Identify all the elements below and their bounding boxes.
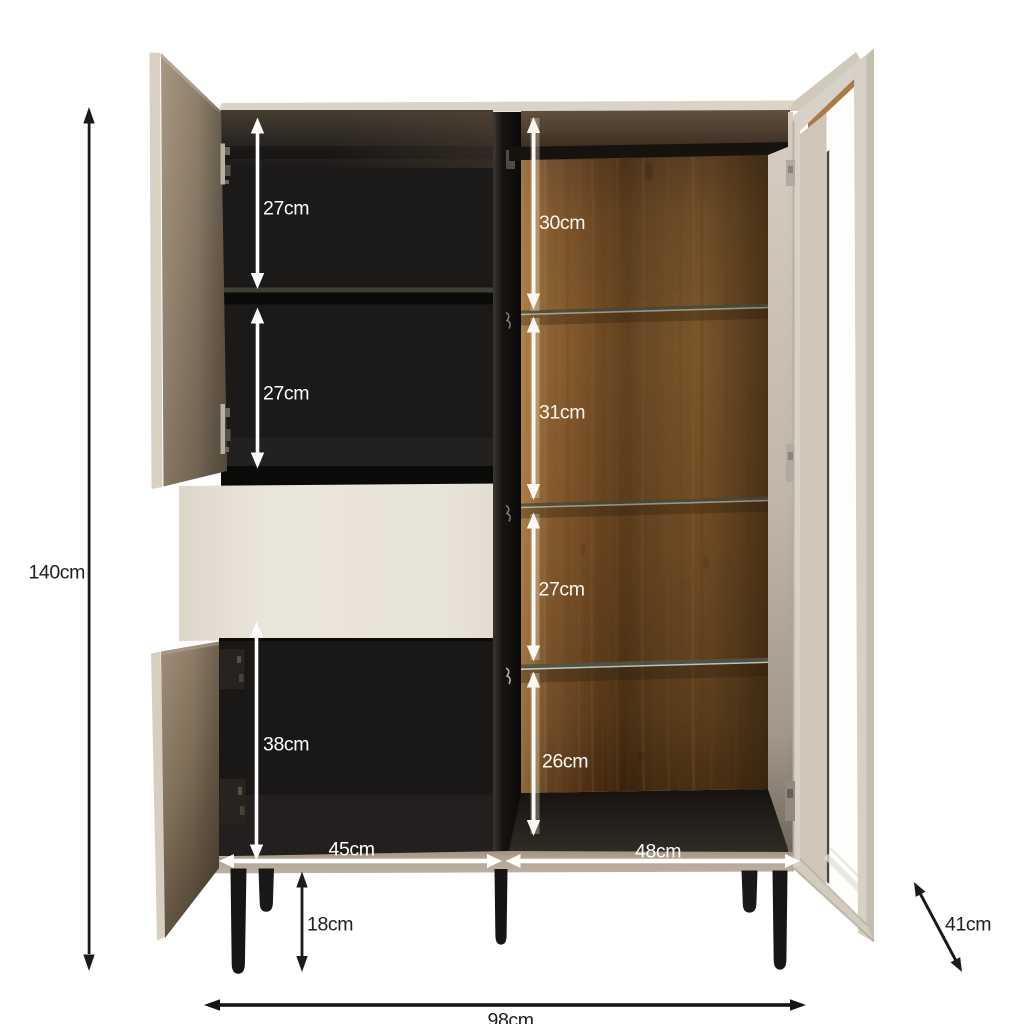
svg-text:45cm: 45cm [329,838,375,860]
svg-text:48cm: 48cm [635,840,681,862]
svg-text:27cm: 27cm [539,578,585,600]
svg-text:18cm: 18cm [307,914,353,936]
svg-text:30cm: 30cm [539,212,585,234]
svg-text:41cm: 41cm [945,913,991,935]
svg-text:98cm: 98cm [488,1010,534,1024]
svg-text:27cm: 27cm [263,383,309,405]
svg-text:31cm: 31cm [539,401,585,423]
svg-text:26cm: 26cm [542,750,588,772]
svg-text:38cm: 38cm [263,734,309,756]
svg-text:140cm: 140cm [28,562,85,584]
svg-text:27cm: 27cm [263,198,309,220]
